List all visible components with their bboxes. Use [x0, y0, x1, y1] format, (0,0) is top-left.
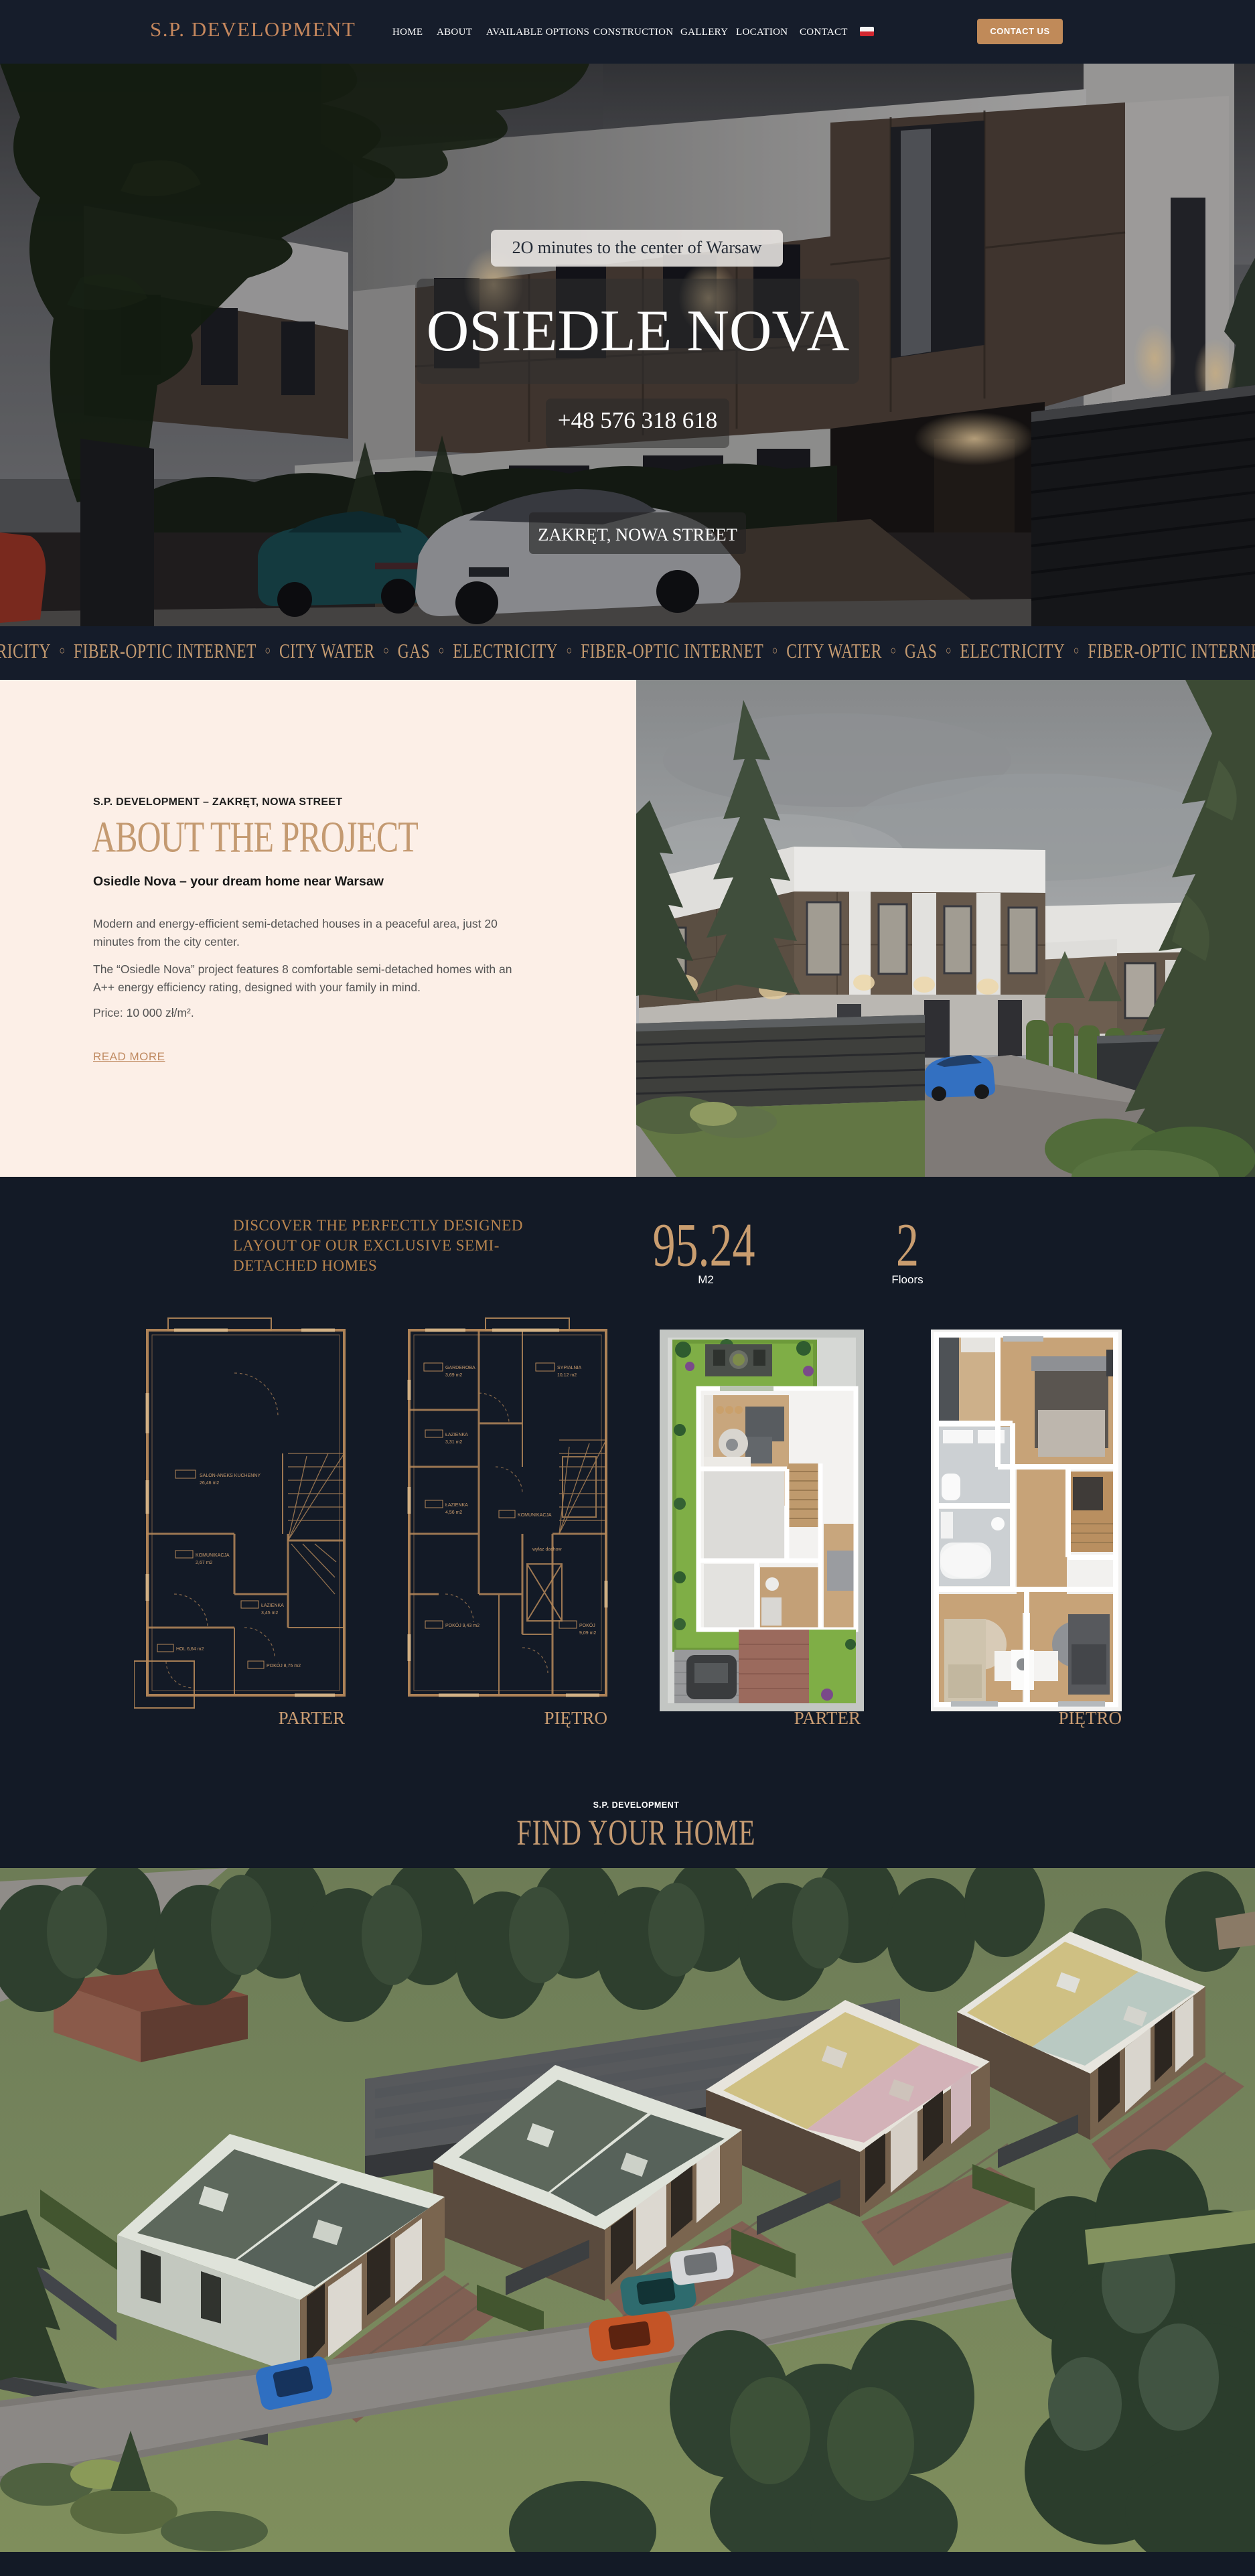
- svg-text:ŁAZIENKA: ŁAZIENKA: [261, 1603, 284, 1608]
- svg-text:2,67 m2: 2,67 m2: [196, 1561, 212, 1565]
- svg-text:wyłaz dachow: wyłaz dachow: [532, 1547, 563, 1552]
- svg-text:9,09 m2: 9,09 m2: [579, 1631, 596, 1636]
- svg-text:3,31 m2: 3,31 m2: [445, 1440, 462, 1445]
- svg-text:HOL 6,64 m2: HOL 6,64 m2: [176, 1647, 204, 1652]
- svg-text:POKÓJ: POKÓJ: [579, 1622, 595, 1628]
- svg-text:SALON-ANEKS KUCHENNY: SALON-ANEKS KUCHENNY: [200, 1474, 261, 1478]
- svg-text:KOMUNIKACJA: KOMUNIKACJA: [196, 1553, 230, 1558]
- svg-text:26,46 m2: 26,46 m2: [200, 1481, 219, 1486]
- svg-text:ŁAZIENKA: ŁAZIENKA: [445, 1503, 468, 1508]
- svg-text:3,69 m2: 3,69 m2: [445, 1373, 462, 1378]
- svg-text:10,12 m2: 10,12 m2: [557, 1373, 577, 1378]
- svg-text:POKÓJ 9,43 m2: POKÓJ 9,43 m2: [445, 1622, 479, 1628]
- svg-text:ŁAZIENKA: ŁAZIENKA: [445, 1433, 468, 1437]
- svg-text:POKÓJ 8,75 m2: POKÓJ 8,75 m2: [267, 1662, 301, 1668]
- svg-text:4,56 m2: 4,56 m2: [445, 1510, 462, 1515]
- svg-text:3,45 m2: 3,45 m2: [261, 1611, 278, 1616]
- svg-text:GARDEROBA: GARDEROBA: [445, 1366, 475, 1370]
- svg-text:KOMUNIKACJA: KOMUNIKACJA: [518, 1513, 552, 1518]
- svg-text:SYPIALNIA: SYPIALNIA: [557, 1366, 582, 1370]
